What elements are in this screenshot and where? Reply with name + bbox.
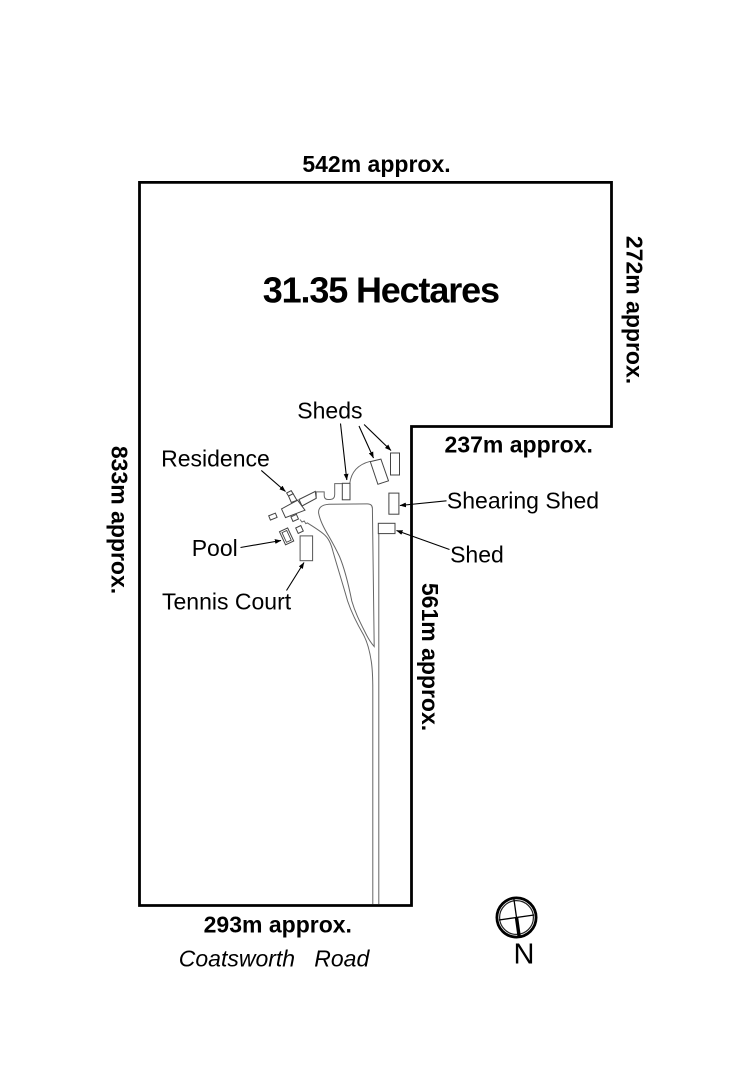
svg-text:833m approx.: 833m approx. (107, 446, 133, 594)
svg-text:Residence: Residence (161, 445, 270, 471)
svg-text:542m approx.: 542m approx. (302, 151, 450, 177)
svg-text:Pool: Pool (192, 535, 238, 561)
svg-text:272m approx.: 272m approx. (622, 236, 648, 384)
svg-text:237m approx.: 237m approx. (445, 431, 593, 457)
svg-text:Tennis Court: Tennis Court (162, 589, 292, 615)
svg-text:N: N (514, 939, 535, 971)
svg-text:Sheds: Sheds (297, 397, 362, 423)
svg-text:31.35 Hectares: 31.35 Hectares (263, 270, 499, 311)
svg-text:561m approx.: 561m approx. (417, 583, 443, 731)
svg-text:293m approx.: 293m approx. (204, 912, 352, 938)
svg-text:Shearing Shed: Shearing Shed (447, 488, 599, 514)
svg-text:Coatsworth Road: Coatsworth Road (179, 945, 371, 971)
svg-text:Shed: Shed (450, 541, 504, 567)
